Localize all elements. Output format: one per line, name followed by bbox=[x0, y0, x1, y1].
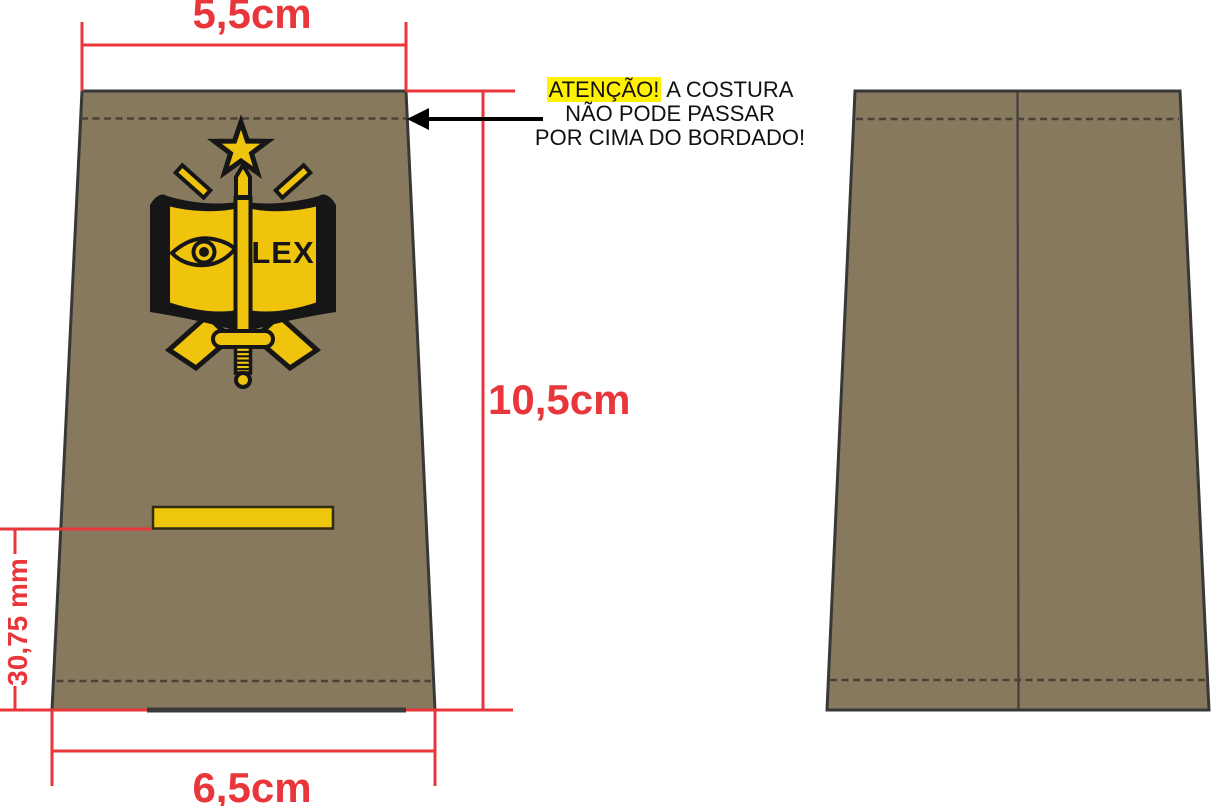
center-seam-back bbox=[1018, 92, 1019, 709]
sword-crossguard bbox=[213, 331, 273, 347]
dim-top-width-label: 5,5cm bbox=[140, 0, 364, 37]
dim-stripe-label: 30,75 mm bbox=[3, 547, 33, 697]
dim-bottom-width-label: 6,5cm bbox=[152, 765, 352, 806]
sword-blade bbox=[236, 198, 251, 332]
sword-pommel bbox=[236, 373, 250, 387]
eye-pupil bbox=[199, 247, 209, 257]
shoulder-board-spec-diagram: LEX 5,5cm 10,5cm 6,5cm 30,75 mm ATENÇÃO!… bbox=[0, 0, 1211, 806]
warning-line-2: NÃO PODE PASSAR bbox=[495, 102, 845, 126]
sword-blade-tip-icon bbox=[236, 165, 250, 197]
warning-note: ATENÇÃO! A COSTURA NÃO PODE PASSAR POR C… bbox=[495, 78, 845, 150]
lex-motto: LEX bbox=[251, 235, 314, 270]
rank-stripe bbox=[153, 507, 333, 529]
warning-line-1: ATENÇÃO! A COSTURA bbox=[495, 78, 845, 102]
dim-height-label: 10,5cm bbox=[488, 377, 688, 423]
warning-line-3: POR CIMA DO BORDADO! bbox=[495, 126, 845, 150]
warning-line-1-rest: A COSTURA bbox=[661, 77, 793, 102]
attention-highlight: ATENÇÃO! bbox=[547, 77, 662, 102]
